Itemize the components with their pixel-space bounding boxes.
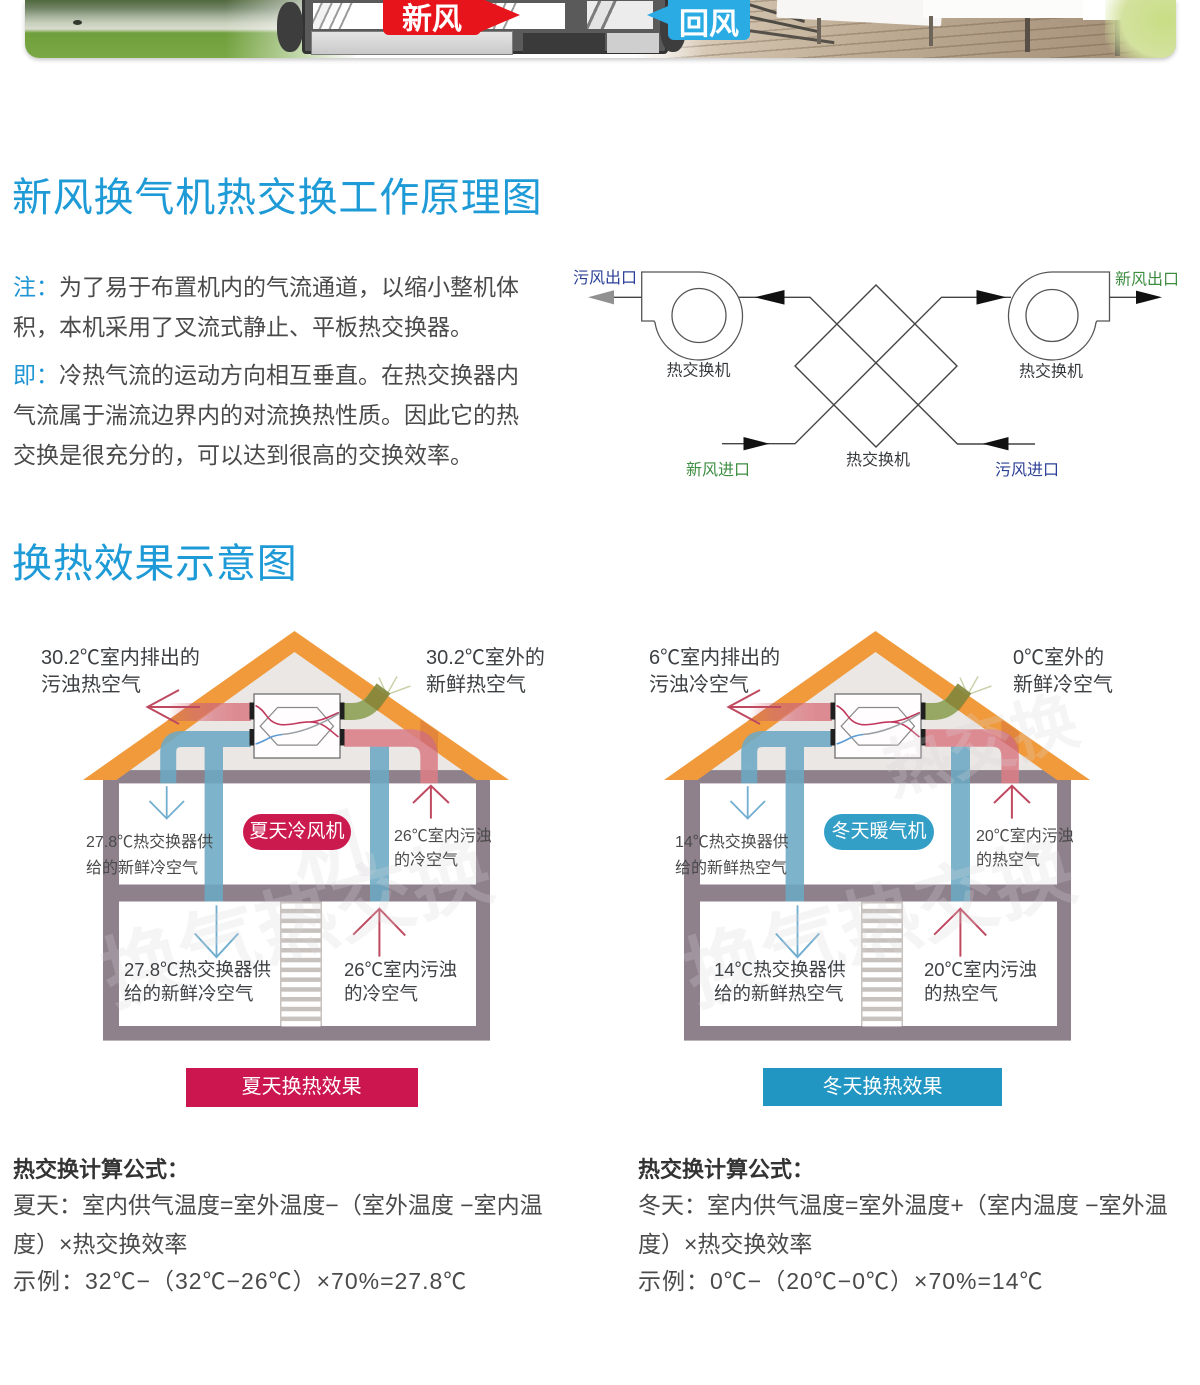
svg-text:热交换机: 热交换机: [667, 362, 731, 380]
svg-text:热交换机: 热交换机: [1019, 363, 1083, 381]
svg-text:热交换机: 热交换机: [846, 451, 910, 469]
svg-text:污风进口: 污风进口: [995, 461, 1059, 479]
svg-text:新风进口: 新风进口: [686, 461, 750, 479]
svg-text:污风出口: 污风出口: [573, 269, 637, 287]
svg-text:新风出口: 新风出口: [1115, 271, 1179, 289]
